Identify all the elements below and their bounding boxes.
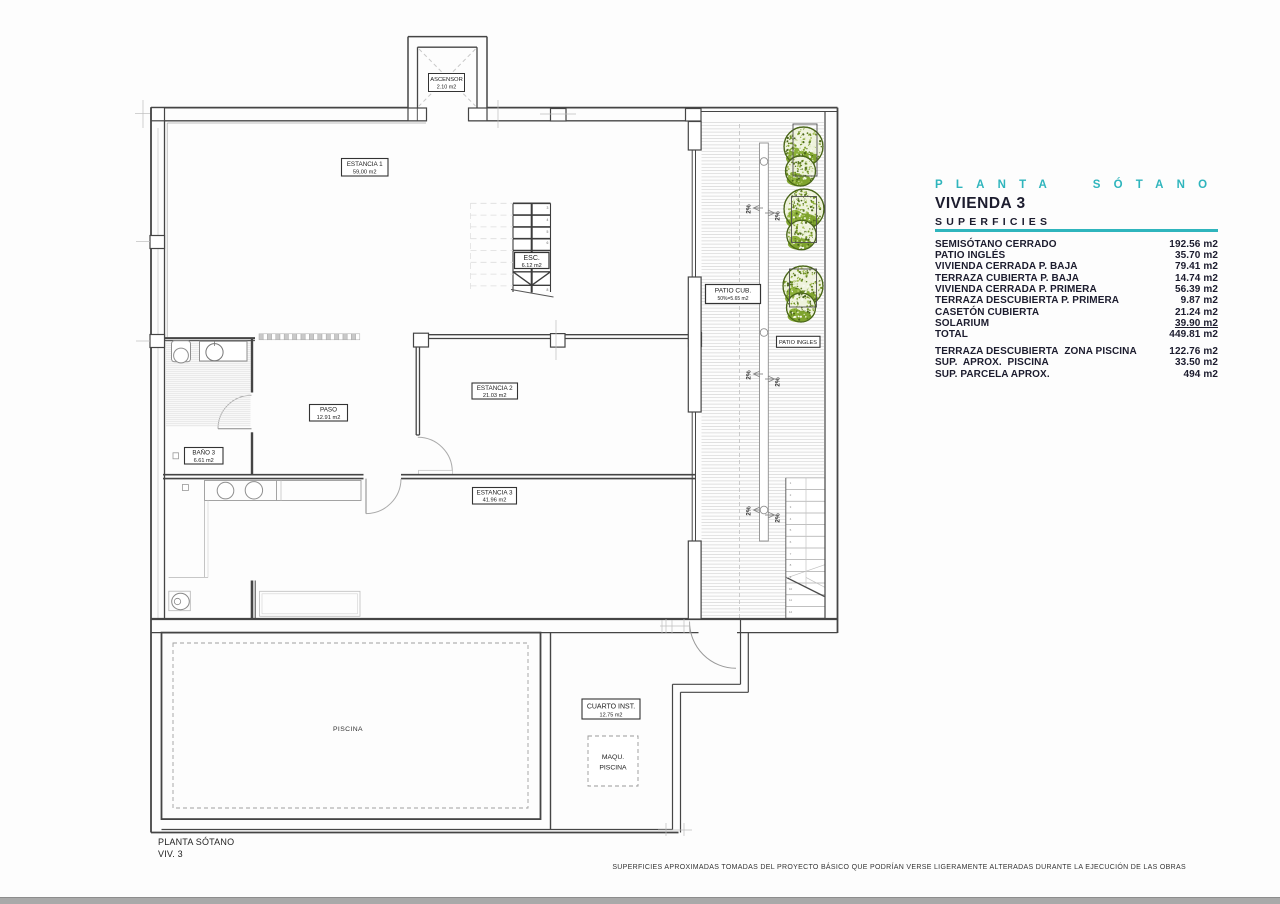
- svg-text:ESC.: ESC.: [524, 255, 540, 262]
- svg-text:PATIO INGLES: PATIO INGLES: [779, 340, 817, 346]
- svg-text:2.10 m2: 2.10 m2: [437, 85, 456, 91]
- svg-text:12.91 m2: 12.91 m2: [317, 415, 341, 421]
- svg-text:MAQU.: MAQU.: [602, 754, 624, 761]
- svg-text:8: 8: [547, 288, 549, 292]
- svg-text:PISCINA: PISCINA: [599, 765, 627, 772]
- svg-text:4: 4: [547, 218, 549, 222]
- svg-text:2%: 2%: [775, 211, 782, 221]
- svg-text:2%: 2%: [775, 513, 782, 523]
- svg-text:41.96 m2: 41.96 m2: [483, 498, 507, 504]
- svg-text:PATIO CUB.: PATIO CUB.: [715, 288, 752, 295]
- svg-text:2%: 2%: [746, 370, 753, 380]
- svg-text:21.03 m2: 21.03 m2: [483, 393, 507, 399]
- svg-text:59,00 m2: 59,00 m2: [353, 170, 377, 176]
- svg-text:ESTANCIA 1: ESTANCIA 1: [347, 161, 383, 168]
- svg-text:50%=5.65 m2: 50%=5.65 m2: [718, 296, 749, 302]
- svg-text:6: 6: [547, 241, 549, 245]
- svg-text:ESTANCIA 3: ESTANCIA 3: [477, 490, 513, 497]
- svg-text:BAÑO 3: BAÑO 3: [192, 450, 215, 457]
- svg-text:ASCENSOR: ASCENSOR: [430, 77, 463, 83]
- svg-text:12: 12: [789, 610, 793, 614]
- svg-text:ESTANCIA 2: ESTANCIA 2: [477, 385, 513, 392]
- svg-text:2%: 2%: [775, 377, 782, 387]
- svg-text:12.75 m2: 12.75 m2: [600, 713, 623, 719]
- svg-text:2%: 2%: [746, 506, 753, 516]
- svg-text:2%: 2%: [746, 204, 753, 214]
- svg-text:PASO: PASO: [320, 407, 337, 414]
- svg-text:6.61 m2: 6.61 m2: [194, 458, 214, 464]
- svg-text:10: 10: [789, 587, 793, 591]
- svg-text:3: 3: [547, 206, 549, 210]
- svg-text:6.12 m2: 6.12 m2: [522, 263, 542, 269]
- svg-text:11: 11: [789, 598, 792, 602]
- svg-text:5: 5: [547, 230, 549, 234]
- svg-text:CUARTO INST.: CUARTO INST.: [587, 704, 635, 711]
- svg-text:PISCINA: PISCINA: [333, 726, 363, 733]
